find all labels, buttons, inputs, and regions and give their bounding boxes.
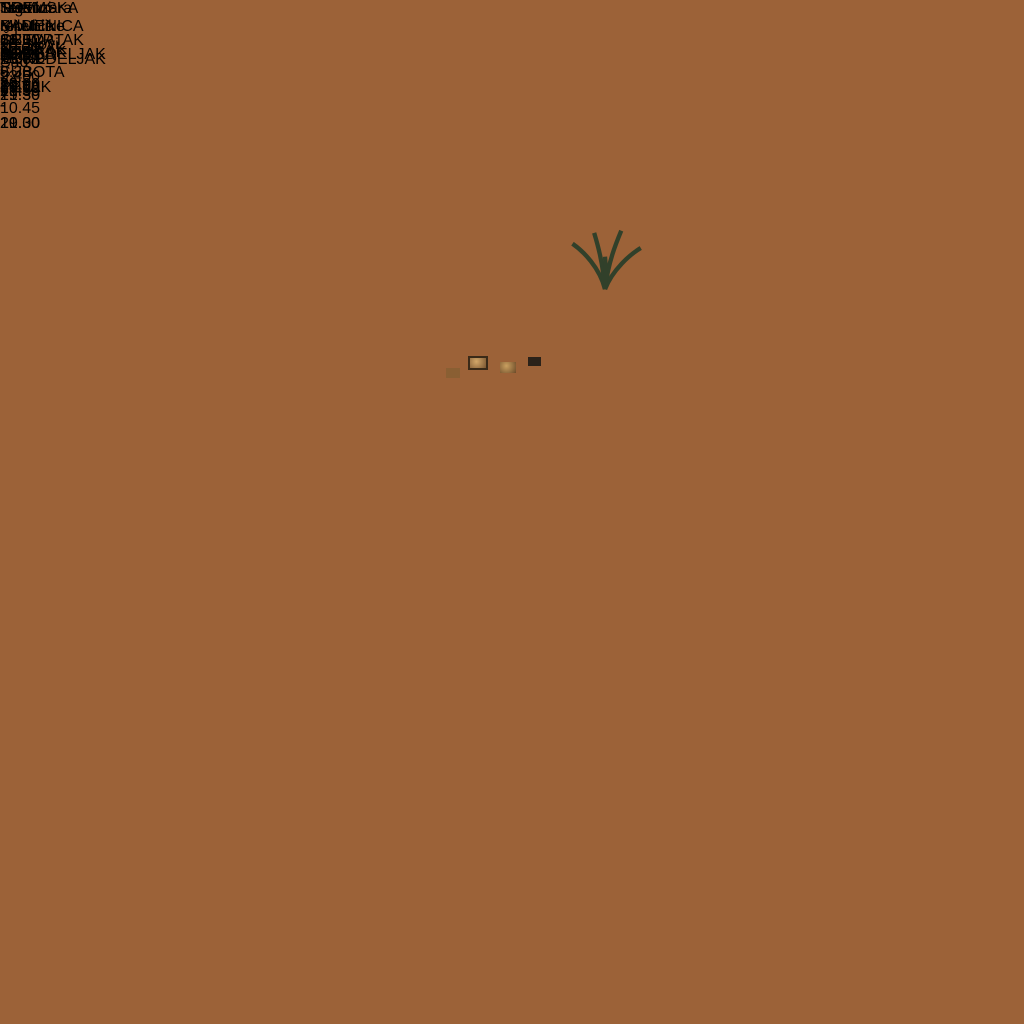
patterned-pillow <box>0 631 84 713</box>
patterned-pillow <box>647 947 786 1024</box>
singing-bowl <box>468 356 488 370</box>
rolled-mat <box>718 105 828 137</box>
rolled-mat <box>886 190 978 216</box>
rolled-mat <box>714 216 826 242</box>
window <box>575 60 637 210</box>
yoga-schedule-poster: Termini: NOVI SAD PONEDELJAK 18.00 - 19.… <box>0 0 1024 1024</box>
studio-photo <box>0 0 1024 1024</box>
right-address: Svetozara Miletića 2b <box>0 0 72 54</box>
window <box>30 105 140 333</box>
rolled-mat <box>888 103 978 135</box>
hanging-mat <box>871 49 991 95</box>
singing-bowl <box>528 357 541 366</box>
potted-plant <box>566 222 644 300</box>
patterned-pillow <box>949 321 1024 393</box>
patterned-pillow <box>713 724 908 862</box>
patterned-pillow <box>512 441 638 525</box>
singing-bowl <box>500 362 516 373</box>
rolled-mat <box>716 192 824 216</box>
time-slot: 9.30 - 10.45 <box>0 64 40 118</box>
rolled-mat <box>884 216 979 244</box>
patterned-pillow <box>400 777 641 965</box>
reflected-yoga-mat <box>18 307 172 364</box>
